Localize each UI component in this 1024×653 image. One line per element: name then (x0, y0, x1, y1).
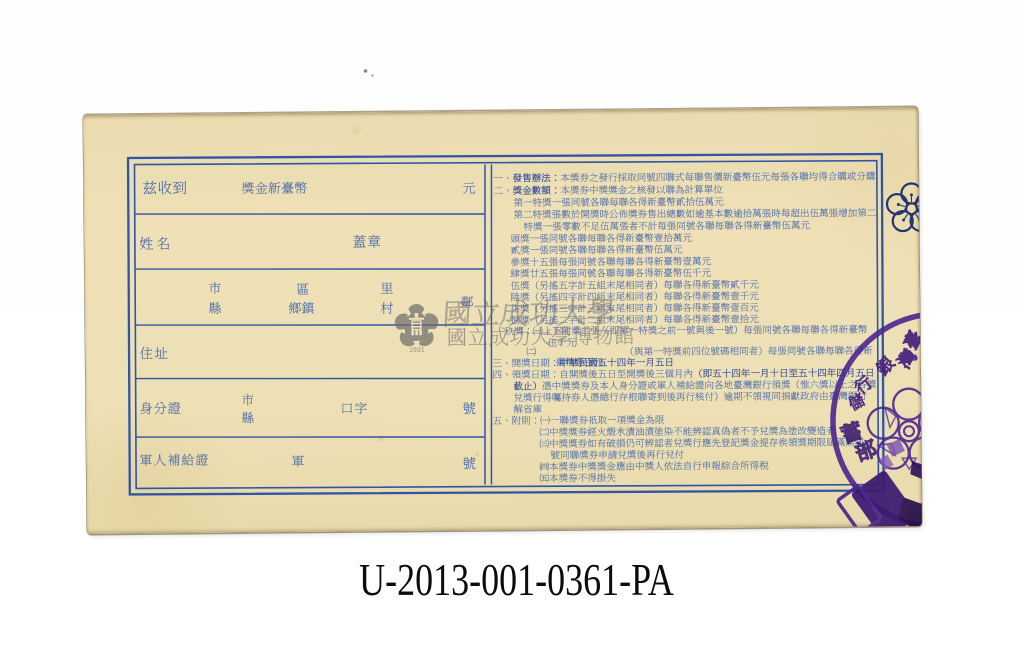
svg-text:1931: 1931 (409, 347, 425, 354)
